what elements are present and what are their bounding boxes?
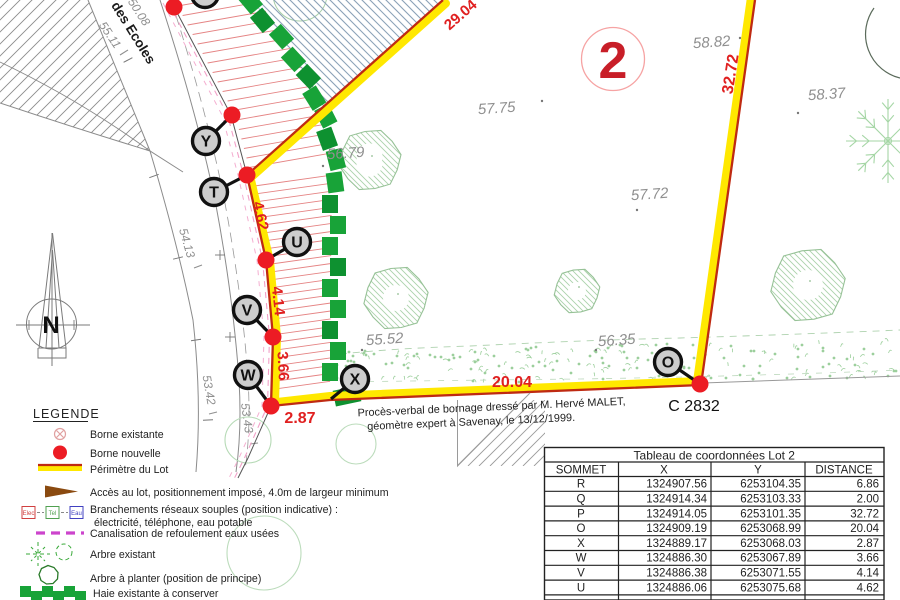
svg-text:32.72: 32.72 bbox=[850, 508, 879, 520]
svg-text:6253071.55: 6253071.55 bbox=[740, 568, 801, 580]
svg-text:2: 2 bbox=[599, 32, 628, 90]
svg-text:1324886.38: 1324886.38 bbox=[646, 568, 707, 580]
svg-text:1324907.56: 1324907.56 bbox=[646, 479, 707, 491]
svg-text:W: W bbox=[240, 368, 256, 385]
svg-text:6253068.99: 6253068.99 bbox=[740, 523, 801, 535]
svg-text:6253103.33: 6253103.33 bbox=[740, 494, 801, 506]
svg-text:SOMMET: SOMMET bbox=[556, 465, 606, 477]
svg-text:6253101.35: 6253101.35 bbox=[740, 508, 801, 520]
svg-text:X: X bbox=[660, 465, 668, 477]
svg-text:1324889.17: 1324889.17 bbox=[646, 538, 707, 550]
svg-text:2.87: 2.87 bbox=[284, 410, 315, 427]
svg-text:6253075.68: 6253075.68 bbox=[740, 582, 801, 594]
svg-text:4.62: 4.62 bbox=[857, 582, 879, 594]
svg-text:4.14: 4.14 bbox=[268, 286, 288, 317]
svg-text:W: W bbox=[576, 553, 587, 565]
svg-text:V: V bbox=[242, 303, 253, 320]
svg-text:56.35: 56.35 bbox=[597, 331, 636, 351]
svg-text:3.66: 3.66 bbox=[857, 553, 879, 565]
svg-text:Branchements réseaux souples (: Branchements réseaux souples (position i… bbox=[90, 504, 338, 516]
svg-text:6253067.89: 6253067.89 bbox=[740, 553, 801, 565]
svg-text:57.75: 57.75 bbox=[477, 99, 516, 119]
svg-text:20.04: 20.04 bbox=[850, 523, 879, 535]
svg-text:Tel: Tel bbox=[49, 511, 57, 517]
svg-text:1324886.30: 1324886.30 bbox=[646, 553, 707, 565]
svg-text:DISTANCE: DISTANCE bbox=[815, 465, 873, 477]
svg-text:Q: Q bbox=[577, 494, 586, 506]
svg-text:Arbre à planter (position de p: Arbre à planter (position de principe) bbox=[90, 573, 261, 585]
svg-text:Tableau de coordonnées Lot 2: Tableau de coordonnées Lot 2 bbox=[634, 449, 796, 463]
svg-text:Canalisation de refoulement ea: Canalisation de refoulement eaux usées bbox=[90, 528, 279, 540]
svg-text:20.04: 20.04 bbox=[492, 374, 532, 391]
svg-text:Borne existante: Borne existante bbox=[90, 429, 164, 441]
svg-text:1324886.06: 1324886.06 bbox=[646, 582, 707, 594]
svg-text:X: X bbox=[577, 538, 585, 550]
svg-text:Borne nouvelle: Borne nouvelle bbox=[90, 448, 161, 460]
svg-text:O: O bbox=[577, 523, 586, 535]
svg-text:P: P bbox=[577, 508, 585, 520]
svg-text:56.79: 56.79 bbox=[326, 144, 365, 164]
svg-text:LEGENDE: LEGENDE bbox=[33, 407, 100, 421]
svg-text:4.14: 4.14 bbox=[857, 568, 880, 580]
svg-text:6253104.35: 6253104.35 bbox=[740, 479, 801, 491]
svg-text:X: X bbox=[350, 372, 361, 389]
svg-text:R: R bbox=[577, 479, 585, 491]
svg-text:1324914.05: 1324914.05 bbox=[646, 508, 707, 520]
svg-text:V: V bbox=[577, 568, 585, 580]
svg-text:2.00: 2.00 bbox=[857, 494, 879, 506]
svg-text:6253068.03: 6253068.03 bbox=[740, 538, 801, 550]
svg-text:O: O bbox=[662, 355, 674, 372]
svg-text:Y: Y bbox=[754, 465, 762, 477]
svg-text:T: T bbox=[209, 185, 219, 202]
svg-text:57.72: 57.72 bbox=[630, 185, 669, 205]
svg-text:U: U bbox=[577, 582, 585, 594]
svg-text:C 2832: C 2832 bbox=[668, 398, 720, 415]
svg-text:58.82: 58.82 bbox=[692, 33, 731, 53]
svg-text:Arbre existant: Arbre existant bbox=[90, 549, 155, 561]
svg-text:1324914.34: 1324914.34 bbox=[646, 494, 707, 506]
svg-text:Eau: Eau bbox=[71, 511, 82, 517]
svg-text:55.52: 55.52 bbox=[365, 330, 404, 350]
svg-text:U: U bbox=[291, 235, 303, 252]
svg-text:Elec: Elec bbox=[23, 511, 35, 517]
svg-text:1324909.19: 1324909.19 bbox=[646, 523, 707, 535]
svg-text:Haie existante à conserver: Haie existante à conserver bbox=[93, 588, 219, 600]
svg-text:N: N bbox=[42, 312, 59, 339]
svg-text:Périmètre du Lot: Périmètre du Lot bbox=[90, 464, 168, 476]
svg-text:58.37: 58.37 bbox=[807, 85, 846, 105]
svg-text:2.87: 2.87 bbox=[857, 538, 879, 550]
svg-text:3.66: 3.66 bbox=[273, 351, 292, 381]
svg-text:Y: Y bbox=[201, 134, 212, 151]
svg-text:Accès au lot, positionnement i: Accès au lot, positionnement imposé, 4.0… bbox=[90, 487, 389, 499]
svg-text:6.86: 6.86 bbox=[857, 479, 879, 491]
